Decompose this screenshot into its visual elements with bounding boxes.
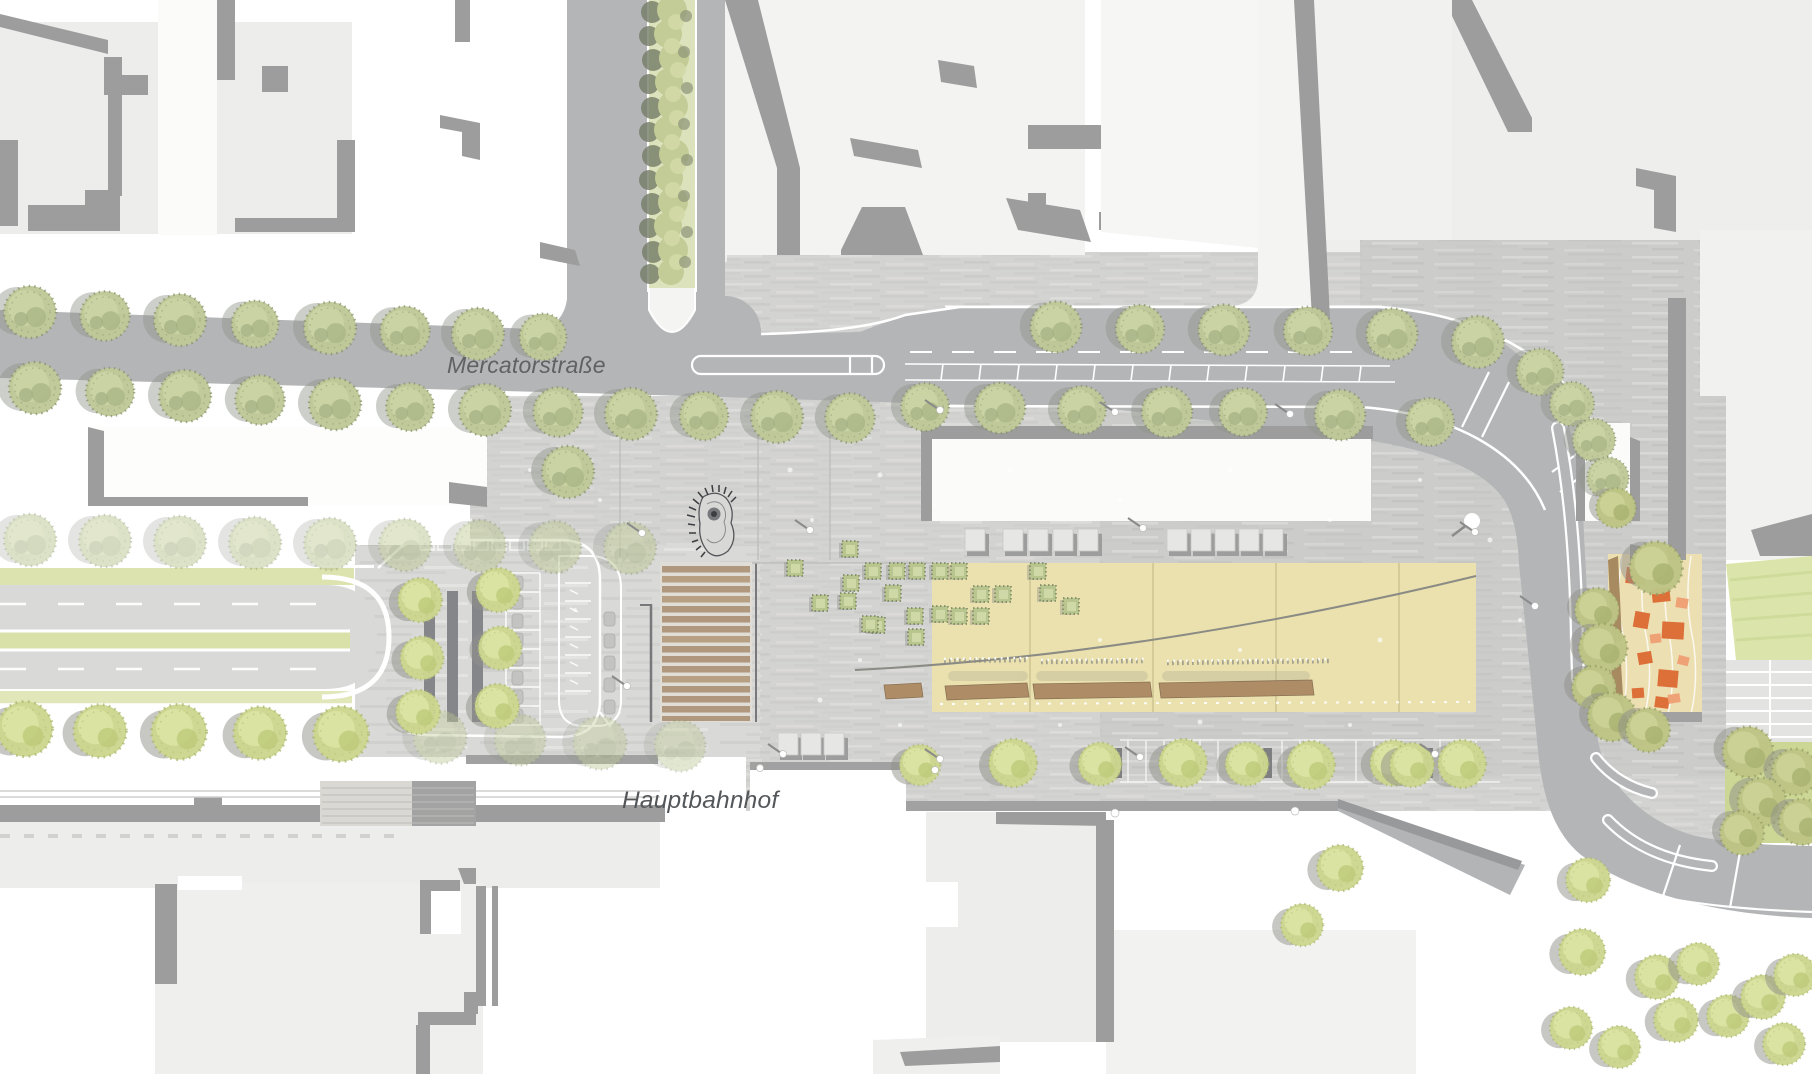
svg-text:Mercatorstraße: Mercatorstraße xyxy=(447,352,606,378)
svg-text:Hauptbahnhof: Hauptbahnhof xyxy=(622,787,780,814)
